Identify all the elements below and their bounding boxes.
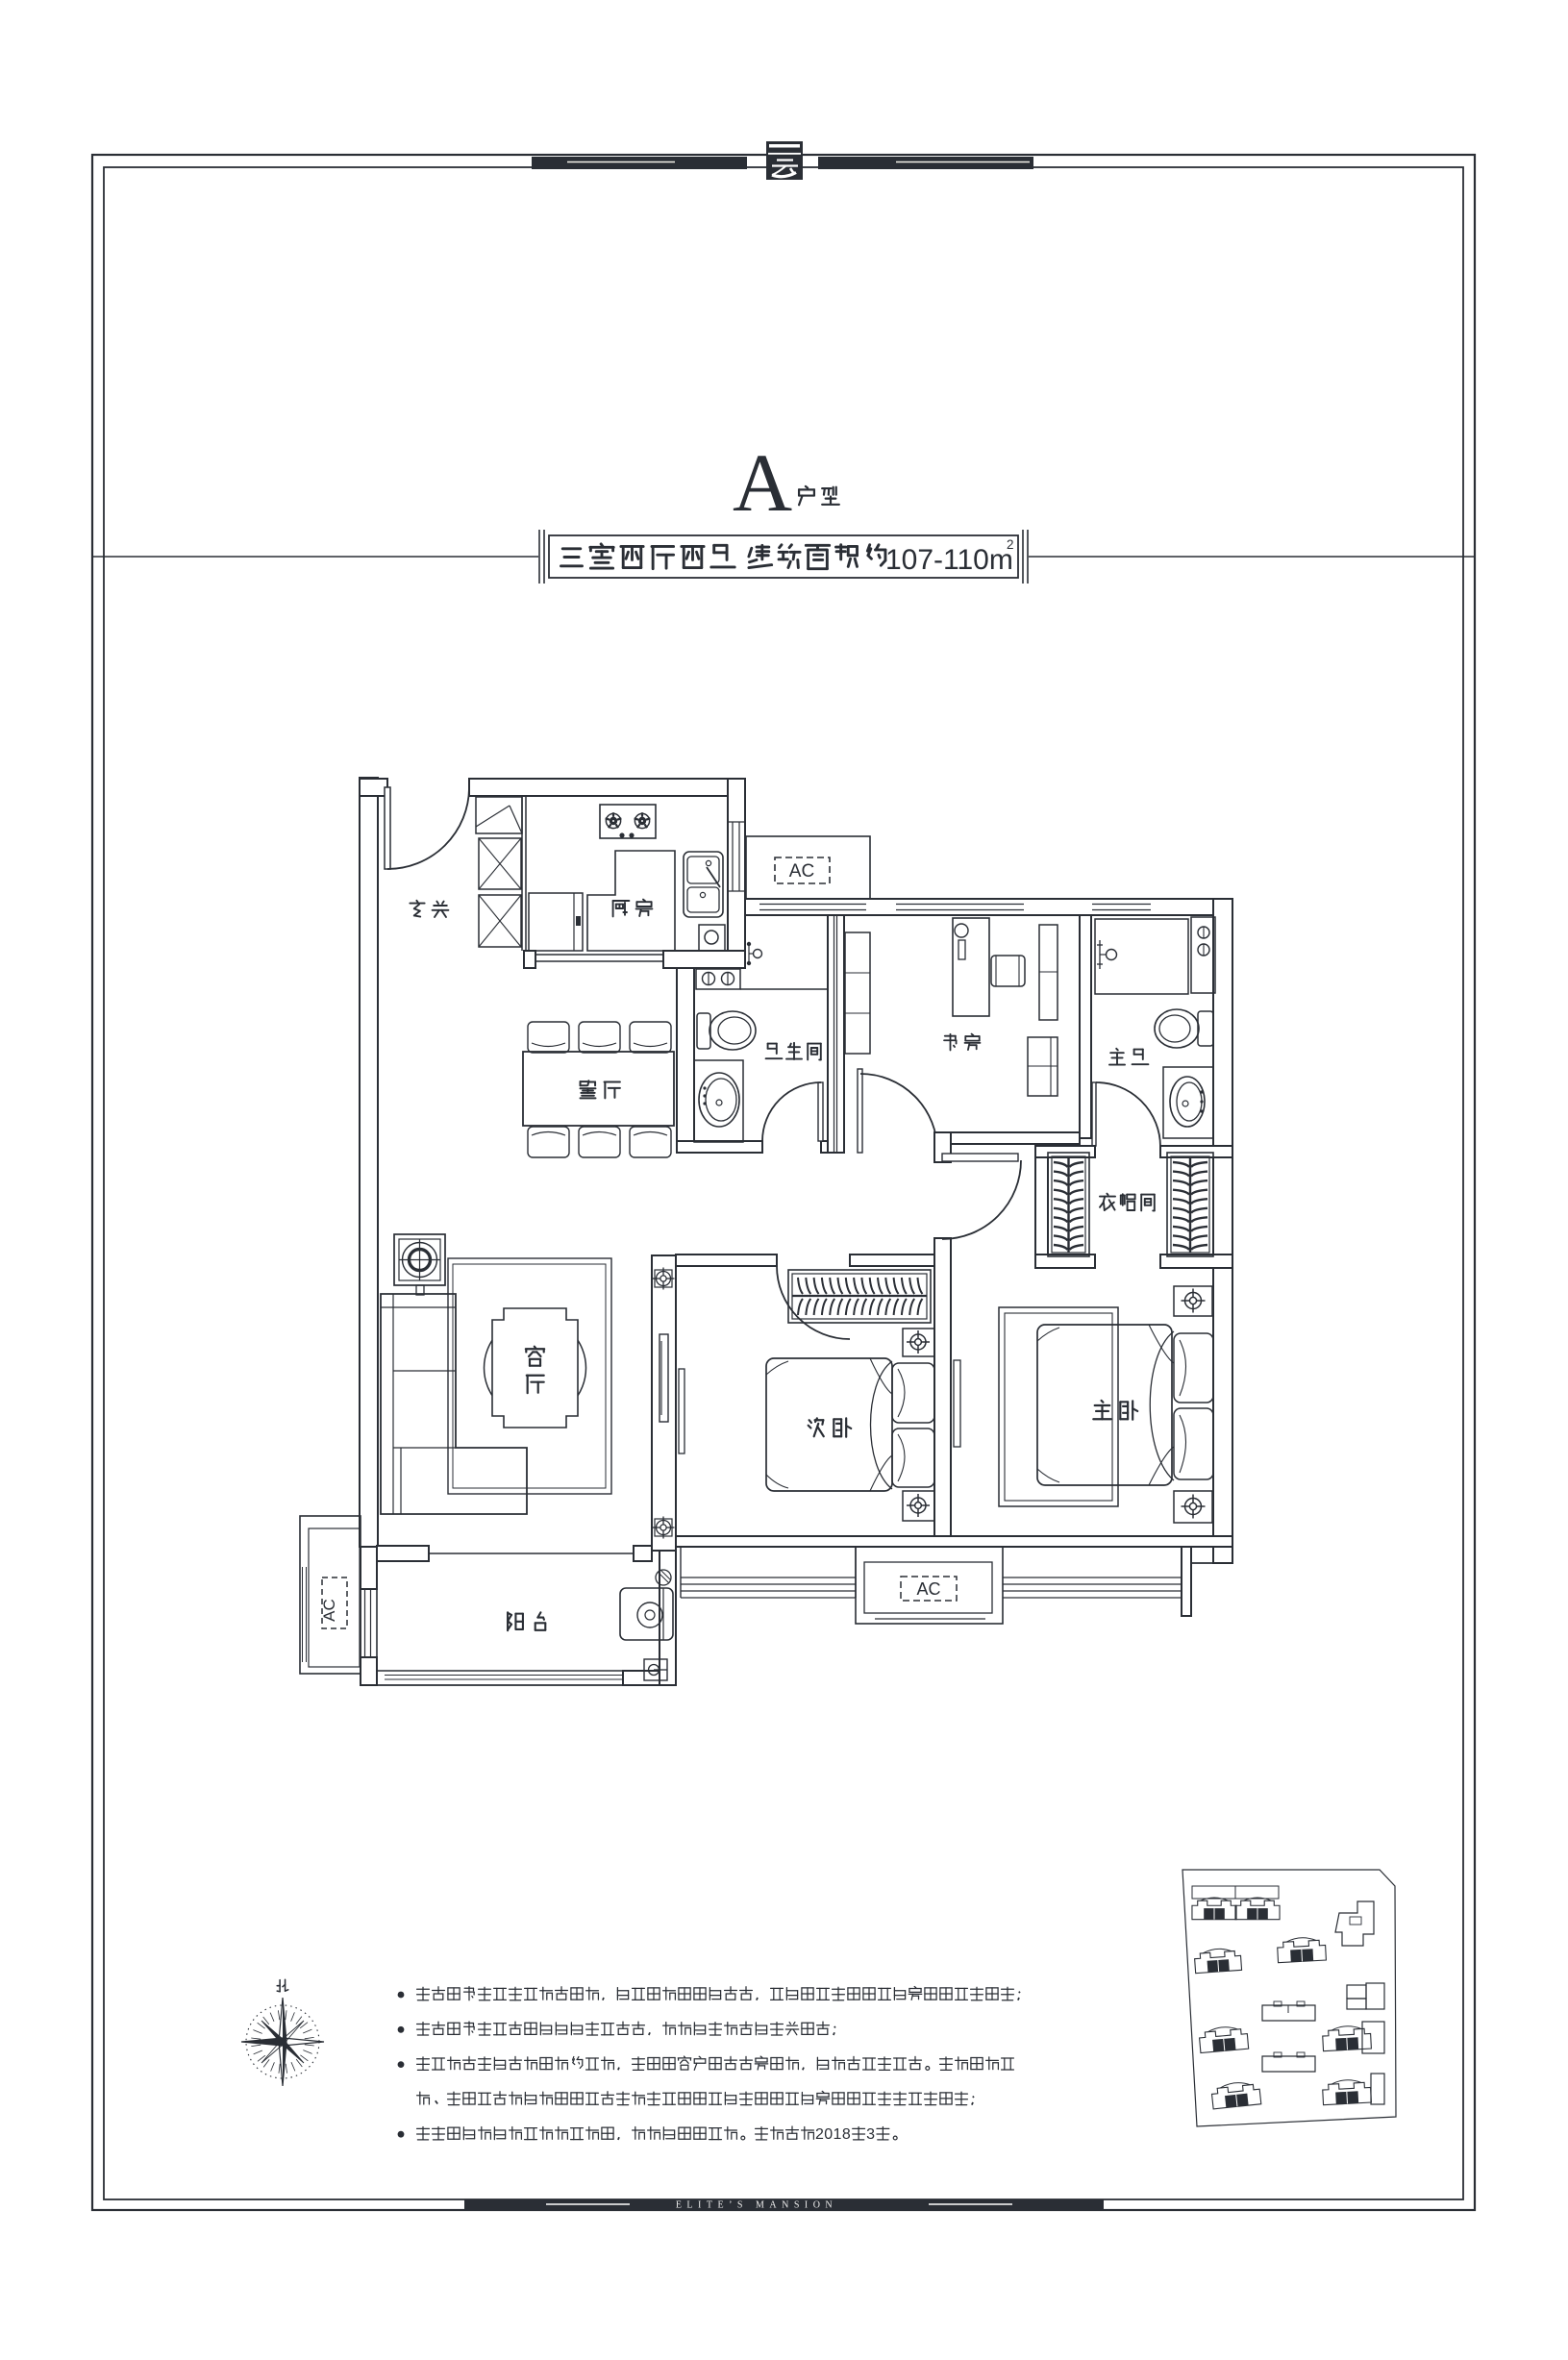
svg-text:AC: AC (320, 1599, 338, 1622)
svg-text:107-110m: 107-110m (885, 544, 1013, 576)
svg-text:2: 2 (815, 2126, 824, 2143)
svg-text:8: 8 (842, 2126, 851, 2143)
svg-text:AC: AC (916, 1579, 940, 1599)
svg-text:2: 2 (1007, 537, 1014, 552)
svg-text:1: 1 (834, 2126, 842, 2143)
svg-text:ELITE’S MANSION: ELITE’S MANSION (676, 2200, 837, 2211)
svg-text:A: A (733, 436, 792, 529)
svg-text:0: 0 (824, 2126, 833, 2143)
svg-text:3: 3 (866, 2126, 875, 2143)
svg-text:AC: AC (789, 861, 814, 882)
